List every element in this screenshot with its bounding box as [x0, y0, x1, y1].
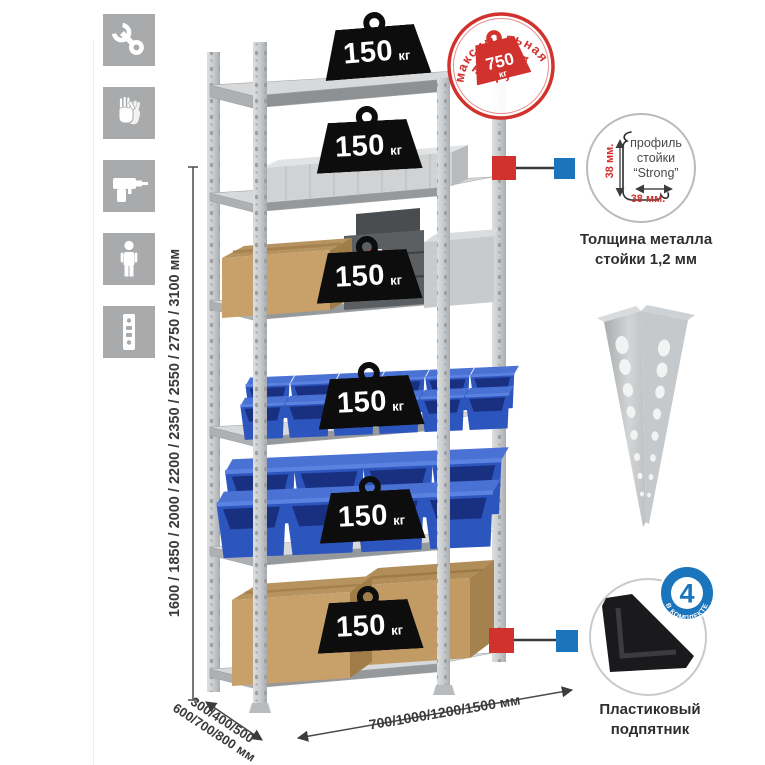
- weight-unit: кг: [390, 272, 403, 288]
- profile-caption-line1: Толщина металла: [566, 230, 726, 250]
- angle-post-artwork: [597, 305, 695, 527]
- weight-value: 150: [334, 259, 386, 295]
- shelf4-load-weight: 150кг: [310, 359, 429, 430]
- weight-unit: кг: [398, 47, 411, 63]
- weight-value: 150: [342, 34, 394, 71]
- weight-unit: кг: [390, 142, 403, 158]
- weight-unit: кг: [391, 622, 404, 638]
- shelf5-load-weight: 150кг: [311, 473, 430, 544]
- weight-value: 150: [337, 499, 389, 535]
- weight-value: 150: [336, 385, 388, 421]
- profile-dim-horizontal: 38 мм.: [620, 193, 676, 205]
- weight-unit: кг: [393, 512, 406, 528]
- profile-caption: Толщина металла стойки 1,2 мм: [566, 230, 726, 269]
- shelf1-load-weight: 150кг: [316, 8, 437, 82]
- max-load-stamp: максимальная нагрузка 750 кг: [438, 3, 564, 129]
- weight-value: 150: [335, 609, 387, 645]
- red-marker-bottom: [489, 628, 514, 653]
- weight-value: 150: [334, 129, 386, 165]
- foot-caption-line1: Пластиковый: [570, 700, 730, 720]
- blue-marker-top: [554, 158, 575, 179]
- shelf3-load-weight: 150кг: [308, 233, 427, 304]
- badge-value: 4: [679, 579, 694, 609]
- foot-caption: Пластиковый подпятник: [570, 700, 730, 739]
- quantity-badge: 4 В КОМПЛЕКТЕ: [660, 566, 714, 622]
- red-marker-top: [492, 156, 516, 180]
- profile-label-line1: профиль: [624, 136, 688, 151]
- profile-label: профиль стойки “Strong”: [624, 136, 688, 181]
- shelf2-load-weight: 150кг: [308, 103, 427, 174]
- foot-caption-line2: подпятник: [570, 720, 730, 740]
- profile-caption-line2: стойки 1,2 мм: [566, 250, 726, 270]
- profile-label-line2: стойки: [624, 151, 688, 166]
- height-dimension-label: 1600 / 1850 / 2000 / 2200 / 2350 / 2550 …: [167, 163, 185, 703]
- profile-label-line3: “Strong”: [624, 166, 688, 181]
- weight-unit: кг: [392, 398, 405, 414]
- profile-dim-vertical: 38 мм.: [604, 133, 616, 189]
- product-infographic: максимальная нагрузка 750 кг: [0, 0, 765, 765]
- blue-marker-bottom: [556, 630, 578, 652]
- shelf6-load-weight: 150кг: [309, 583, 428, 654]
